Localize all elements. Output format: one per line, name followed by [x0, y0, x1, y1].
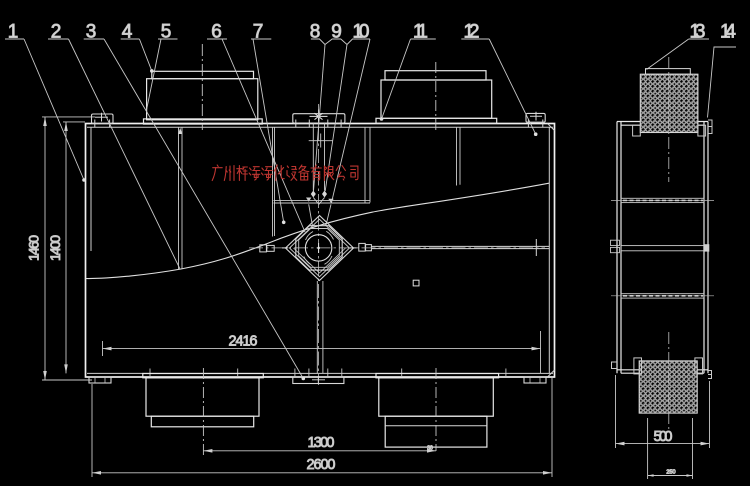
svg-text:1400: 1400 — [47, 235, 63, 261]
svg-text:2600: 2600 — [307, 457, 336, 473]
svg-text:1460: 1460 — [26, 235, 42, 261]
svg-text:500: 500 — [654, 429, 673, 445]
svg-text:2416: 2416 — [229, 334, 258, 350]
svg-text:30: 30 — [427, 446, 433, 452]
svg-text:14: 14 — [720, 22, 736, 43]
svg-text:1300: 1300 — [308, 435, 335, 451]
svg-text:250: 250 — [666, 470, 675, 476]
